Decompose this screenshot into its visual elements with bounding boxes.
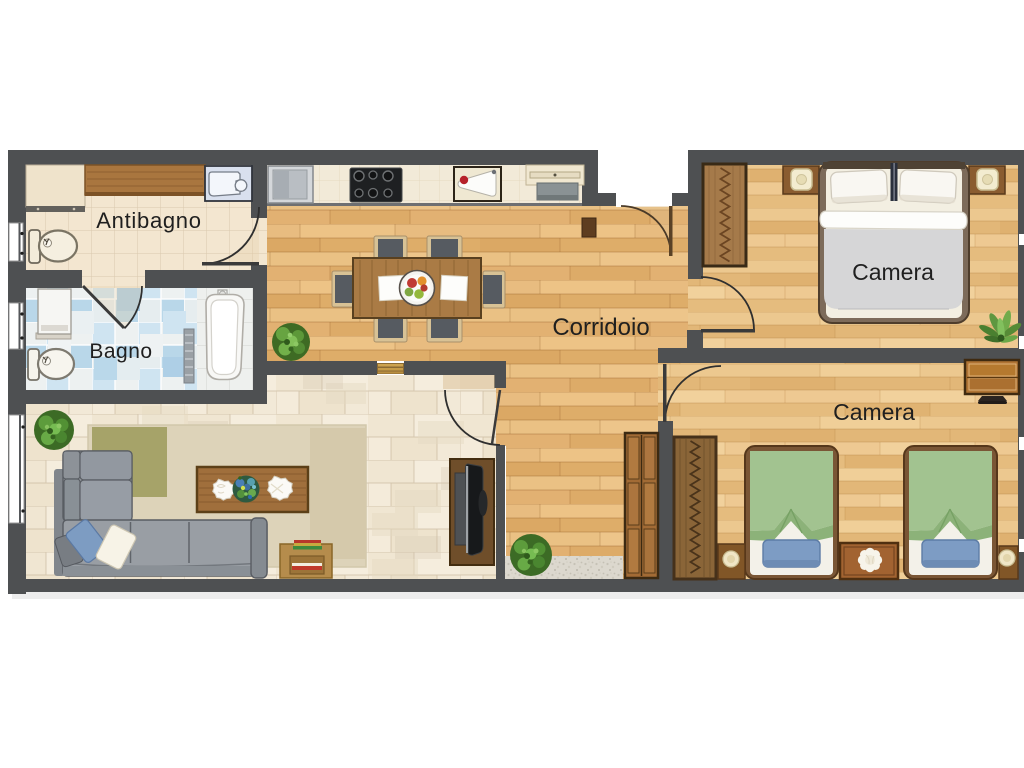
- svg-text:Corridoio: Corridoio: [552, 314, 649, 341]
- svg-text:Camera: Camera: [852, 259, 934, 285]
- svg-text:Bagno: Bagno: [89, 340, 152, 363]
- svg-text:Antibagno: Antibagno: [96, 208, 201, 233]
- svg-text:Camera: Camera: [833, 399, 915, 425]
